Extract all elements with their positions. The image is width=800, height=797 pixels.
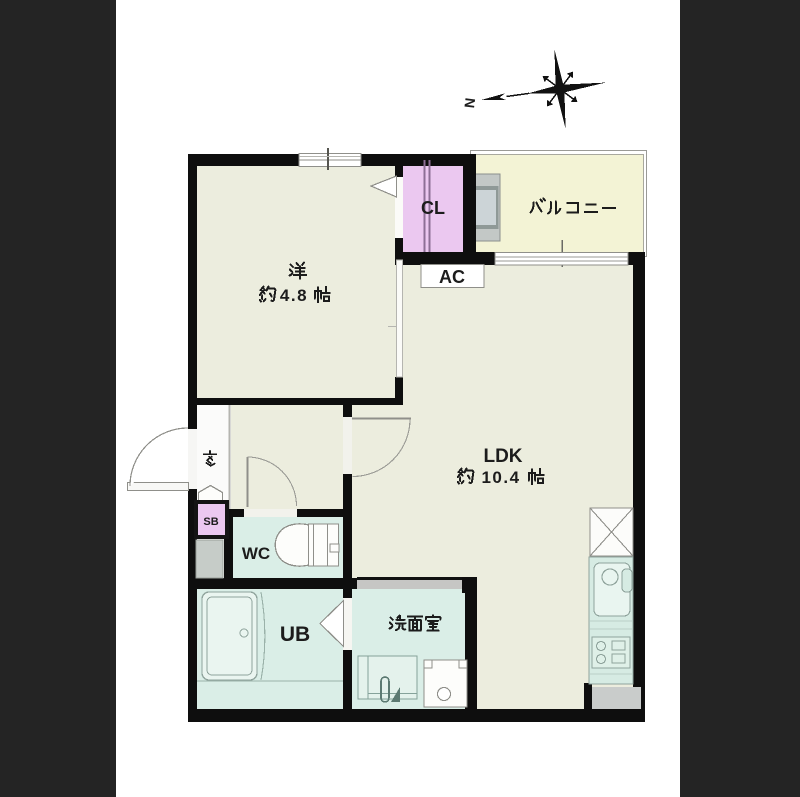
- svg-text:N: N: [461, 97, 478, 109]
- svg-text:WC: WC: [242, 544, 270, 563]
- svg-text:SB: SB: [203, 516, 218, 528]
- svg-text:UB: UB: [280, 623, 310, 646]
- svg-text:CL: CL: [421, 198, 445, 218]
- svg-text:4.8: 4.8: [280, 286, 308, 305]
- svg-text:10.4: 10.4: [481, 468, 520, 487]
- svg-text:AC: AC: [439, 267, 465, 287]
- svg-text:LDK: LDK: [483, 446, 522, 467]
